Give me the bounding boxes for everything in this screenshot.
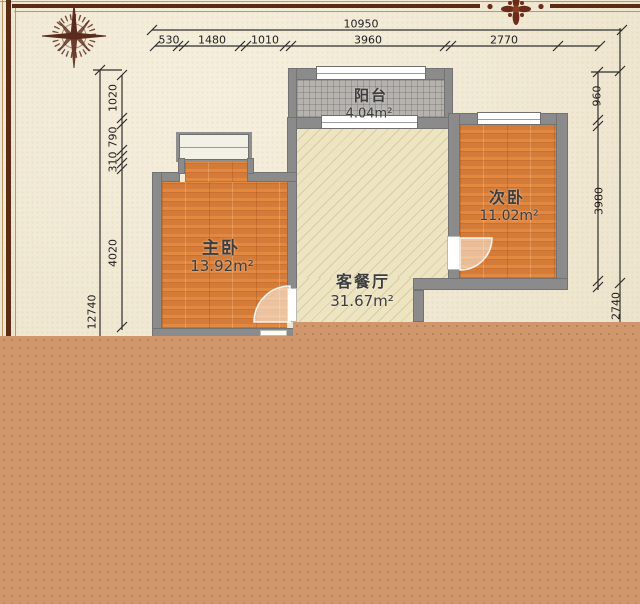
living-dining-name-label: 客餐厅 <box>336 268 390 292</box>
balcony-name-label: 阳台 <box>354 85 388 106</box>
master-bedroom-area-label: 13.92m² <box>190 257 254 275</box>
floor-plan-canvas: 10950 530 1480 1010 3960 2770 1020 790 3… <box>0 0 640 604</box>
second-bedroom-area-label: 11.02m² <box>479 208 538 224</box>
balcony-area-label: 4.04m² <box>346 107 393 122</box>
second-bedroom-name-label: 次卧 <box>489 184 525 208</box>
living-dining-area-label: 31.67m² <box>330 292 394 310</box>
lower-background-panel <box>0 336 640 604</box>
master-bedroom-door-arc <box>254 286 290 322</box>
second-bedroom-door-arc <box>460 238 492 270</box>
master-bedroom-name-label: 主卧 <box>202 234 240 259</box>
